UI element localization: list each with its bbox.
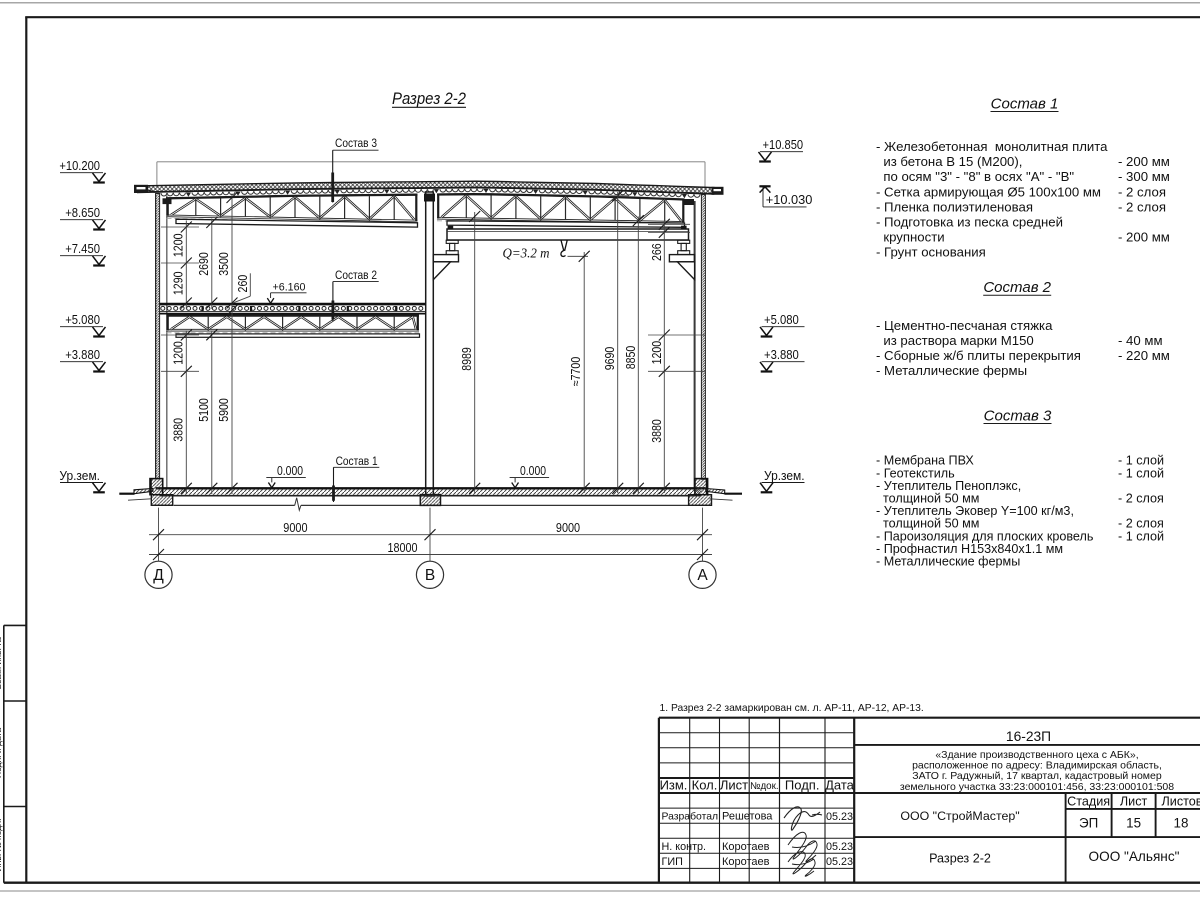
svg-text:- 200 мм: - 200 мм	[1118, 230, 1170, 245]
svg-text:+10.200: +10.200	[59, 158, 100, 173]
svg-text:8989: 8989	[460, 347, 474, 371]
svg-text:≈7700: ≈7700	[569, 357, 583, 387]
svg-text:1200: 1200	[650, 341, 664, 365]
svg-text:Ур.зем.: Ур.зем.	[59, 468, 100, 483]
svg-text:- Пленка полиэтиленовая: - Пленка полиэтиленовая	[876, 199, 1033, 214]
svg-text:05.23: 05.23	[826, 856, 853, 868]
svg-text:+3.880: +3.880	[764, 347, 799, 362]
svg-text:Д: Д	[153, 567, 164, 584]
svg-text:0.000: 0.000	[520, 463, 546, 478]
svg-text:5100: 5100	[197, 398, 211, 422]
svg-text:- Грунт основания: - Грунт основания	[876, 245, 986, 260]
svg-text:+6.160: +6.160	[273, 281, 306, 293]
svg-text:5900: 5900	[217, 398, 231, 422]
svg-text:0.000: 0.000	[277, 463, 303, 478]
svg-text:- Сборные ж/б плиты перекрытия: - Сборные ж/б плиты перекрытия	[876, 348, 1081, 363]
svg-text:1. Разрез 2-2 замаркирован см.: 1. Разрез 2-2 замаркирован см. л. АР-11,…	[660, 703, 924, 714]
svg-text:- 200 мм: - 200 мм	[1118, 154, 1170, 169]
svg-text:из раствора марки М150: из раствора марки М150	[876, 333, 1034, 348]
svg-text:3500: 3500	[217, 252, 231, 276]
svg-text:- Металлические фермы: - Металлические фермы	[876, 555, 1020, 569]
svg-text:- Металлические фермы: - Металлические фермы	[876, 363, 1027, 378]
svg-text:- 2 слоя: - 2 слоя	[1118, 199, 1166, 214]
svg-text:- 40 мм: - 40 мм	[1118, 333, 1163, 348]
svg-text:ООО "Альянс": ООО "Альянс"	[1089, 849, 1180, 864]
svg-text:ЭП: ЭП	[1079, 816, 1098, 831]
svg-text:3880: 3880	[172, 418, 186, 442]
svg-text:+8.650: +8.650	[65, 205, 100, 220]
svg-text:Изм.: Изм.	[660, 778, 688, 793]
svg-text:+5.080: +5.080	[764, 312, 799, 327]
svg-text:18: 18	[1174, 816, 1189, 831]
svg-text:Состав 2: Состав 2	[335, 268, 377, 282]
svg-text:Разрез 2-2: Разрез 2-2	[392, 90, 466, 108]
svg-text:Q=3.2 т: Q=3.2 т	[503, 246, 550, 261]
svg-text:9000: 9000	[283, 521, 307, 535]
svg-text:В: В	[425, 567, 435, 584]
svg-text:Взам. инв. №: Взам. инв. №	[0, 637, 3, 690]
svg-text:по осям "3" - "8" в осях "А" -: по осям "3" - "8" в осях "А" - "В"	[876, 169, 1074, 184]
svg-text:Листов: Листов	[1162, 794, 1200, 808]
svg-text:3880: 3880	[650, 419, 664, 443]
svg-text:18000: 18000	[388, 541, 418, 555]
svg-text:05.23: 05.23	[826, 811, 853, 823]
svg-text:+7.450: +7.450	[65, 241, 100, 256]
svg-text:Решетова: Решетова	[722, 811, 773, 823]
svg-text:- Подготовка из песка средней: - Подготовка из песка средней	[876, 215, 1063, 230]
svg-text:Подп.: Подп.	[785, 778, 820, 793]
svg-text:1200: 1200	[172, 341, 186, 365]
svg-text:Дата: Дата	[825, 778, 855, 793]
svg-text:№док.: №док.	[750, 781, 779, 792]
svg-text:- 1 слой: - 1 слой	[1118, 529, 1164, 543]
svg-text:ООО "СтройМастер": ООО "СтройМастер"	[900, 809, 1019, 823]
svg-text:- Сетка армирующая Ø5 100х100: - Сетка армирующая Ø5 100х100 мм	[876, 184, 1101, 199]
svg-text:Состав 3: Состав 3	[335, 136, 377, 150]
svg-text:Состав 3: Состав 3	[984, 407, 1052, 424]
svg-text:ГИП: ГИП	[662, 856, 683, 868]
svg-text:- 2 слоя: - 2 слоя	[1118, 492, 1164, 506]
svg-text:Подп. и дата: Подп. и дата	[0, 728, 3, 778]
svg-text:+3.880: +3.880	[65, 347, 100, 362]
svg-text:Лист: Лист	[720, 778, 748, 793]
svg-text:9000: 9000	[556, 521, 580, 535]
svg-text:- 300 мм: - 300 мм	[1118, 169, 1170, 184]
svg-text:2690: 2690	[197, 252, 211, 276]
svg-text:266: 266	[650, 243, 664, 261]
svg-text:Коротаев: Коротаев	[722, 841, 770, 853]
svg-text:05.23: 05.23	[826, 841, 853, 853]
svg-text:8850: 8850	[624, 346, 638, 370]
svg-text:9690: 9690	[603, 347, 617, 371]
svg-text:- Цементно-песчаная стяжка: - Цементно-песчаная стяжка	[876, 318, 1053, 333]
svg-text:Стадия: Стадия	[1067, 794, 1110, 808]
svg-text:1200: 1200	[172, 234, 186, 258]
svg-text:Разработал: Разработал	[662, 811, 719, 823]
svg-text:А: А	[697, 567, 708, 584]
svg-text:- 220 мм: - 220 мм	[1118, 348, 1170, 363]
svg-text:Состав 1: Состав 1	[991, 95, 1059, 112]
svg-text:+5.080: +5.080	[65, 312, 100, 327]
svg-text:15: 15	[1126, 816, 1141, 831]
svg-text:Ур.зем.: Ур.зем.	[764, 468, 805, 483]
svg-text:260: 260	[236, 275, 250, 293]
svg-text:1290: 1290	[172, 272, 186, 296]
svg-text:+10.030: +10.030	[766, 192, 813, 207]
svg-text:Коротаев: Коротаев	[722, 856, 770, 868]
svg-text:Состав 2: Состав 2	[983, 279, 1051, 296]
svg-text:- 1 слой: - 1 слой	[1118, 466, 1164, 480]
svg-text:Инв. № подл.: Инв. № подл.	[0, 819, 3, 872]
svg-text:Кол.: Кол.	[692, 778, 718, 793]
svg-text:Н. контр.: Н. контр.	[662, 841, 707, 853]
svg-text:- Железобетонная монолитная п: - Железобетонная монолитная плита	[876, 139, 1108, 154]
svg-text:+10.850: +10.850	[763, 137, 804, 152]
svg-text:Состав 1: Состав 1	[336, 454, 378, 468]
svg-text:крупности: крупности	[876, 230, 945, 245]
svg-text:земельного участка 33:23:00010: земельного участка 33:23:000101:456, 33:…	[900, 781, 1174, 793]
svg-text:Лист: Лист	[1120, 794, 1148, 808]
svg-text:- 2 слоя: - 2 слоя	[1118, 184, 1166, 199]
svg-text:Разрез 2-2: Разрез 2-2	[929, 852, 991, 866]
svg-text:из бетона В 15 (М200),: из бетона В 15 (М200),	[876, 154, 1022, 169]
svg-text:16-23П: 16-23П	[1006, 729, 1051, 744]
